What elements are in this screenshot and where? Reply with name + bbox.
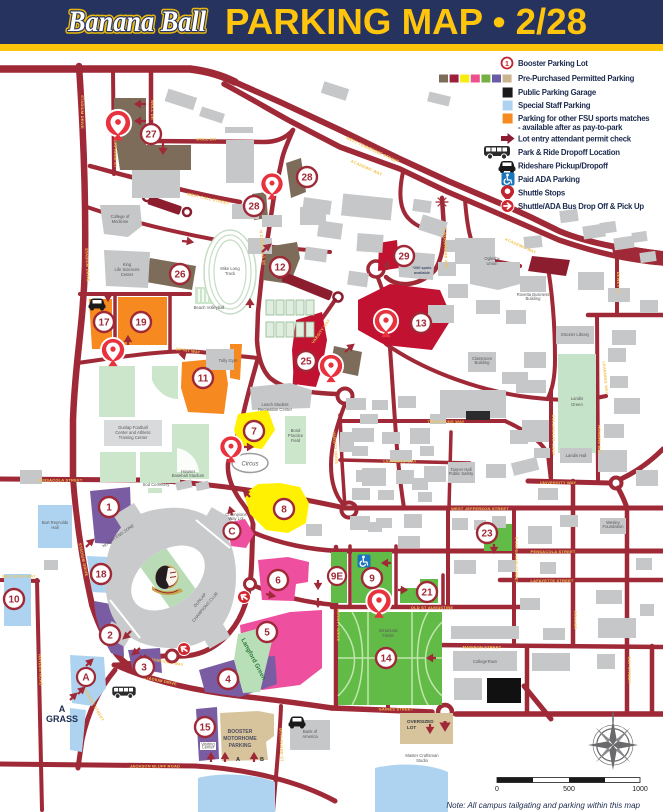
svg-text:9E: 9E [331, 572, 344, 583]
svg-text:JACKSON BLUFF ROAD: JACKSON BLUFF ROAD [130, 764, 180, 769]
svg-text:Landis: Landis [571, 396, 583, 401]
svg-text:1: 1 [505, 61, 509, 68]
svg-text:23: 23 [481, 529, 493, 540]
svg-text:15: 15 [199, 723, 211, 734]
svg-text:Pre-Purchased Permitted Parkin: Pre-Purchased Permitted Parking [518, 74, 635, 83]
svg-text:Park & Ride Dropoff Location: Park & Ride Dropoff Location [518, 148, 620, 157]
svg-text:25: 25 [300, 357, 312, 368]
svg-text:LOT: LOT [407, 725, 416, 730]
svg-text:Field: Field [291, 438, 301, 443]
svg-text:HONORS WAY: HONORS WAY [597, 425, 602, 455]
svg-text:19: 19 [135, 318, 147, 329]
svg-text:Way Lot: Way Lot [228, 516, 244, 521]
svg-text:Baseball Stadium: Baseball Stadium [172, 473, 205, 478]
svg-text:Studio: Studio [416, 758, 429, 763]
svg-text:Circus: Circus [241, 462, 258, 468]
svg-text:MADISON STREET: MADISON STREET [463, 645, 502, 650]
svg-text:Parking for other FSU sports m: Parking for other FSU sports matches [518, 114, 650, 123]
svg-text:A: A [82, 673, 89, 684]
svg-text:LAFAYETTE STREET: LAFAYETTE STREET [530, 578, 573, 583]
svg-text:TRADITIONS WAY: TRADITIONS WAY [427, 419, 464, 424]
svg-text:Recreation Center: Recreation Center [258, 407, 293, 412]
svg-text:Special Staff Parking: Special Staff Parking [518, 101, 591, 110]
svg-text:Hall: Hall [51, 525, 58, 530]
svg-text:OVERSIZED: OVERSIZED [407, 719, 434, 724]
svg-text:PARKING MAP • 2/28: PARKING MAP • 2/28 [225, 1, 587, 42]
svg-text:3: 3 [141, 663, 147, 674]
svg-text:Tully Gym: Tully Gym [219, 358, 238, 363]
svg-text:A: A [236, 757, 240, 763]
svg-text:21: 21 [421, 588, 433, 599]
svg-text:Center: Center [202, 745, 215, 750]
svg-text:29: 29 [398, 252, 410, 263]
svg-text:Public Safety: Public Safety [449, 471, 474, 476]
svg-text:BELLEVUE WAY: BELLEVUE WAY [2, 574, 36, 579]
svg-text:WOLL DR: WOLL DR [150, 100, 155, 120]
svg-text:Green: Green [571, 402, 583, 407]
svg-text:Foundation: Foundation [603, 524, 625, 529]
svg-text:BOOSTER: BOOSTER [228, 729, 253, 735]
svg-text:5: 5 [264, 628, 270, 639]
svg-text:13: 13 [415, 319, 427, 330]
svg-text:17: 17 [98, 318, 110, 329]
svg-text:GAINES STREET: GAINES STREET [379, 707, 414, 712]
svg-text:Paid ADA Parking: Paid ADA Parking [518, 175, 580, 184]
svg-text:OLD ST AUGUSTINE: OLD ST AUGUSTINE [411, 605, 454, 610]
svg-text:S COPELAND STREET: S COPELAND STREET [514, 537, 519, 584]
svg-text:14: 14 [380, 654, 392, 665]
svg-text:B: B [260, 757, 264, 763]
svg-text:2: 2 [107, 631, 113, 642]
svg-text:Landis Hall: Landis Hall [566, 453, 587, 458]
svg-text:Public Parking Garage: Public Parking Garage [518, 88, 597, 97]
svg-text:LEARNING WAY: LEARNING WAY [383, 459, 416, 464]
svg-text:MURPHREE ST: MURPHREE ST [113, 136, 118, 168]
svg-text:COLLEGIATE LOOP: COLLEGIATE LOOP [551, 415, 556, 456]
svg-text:UNIVERSITY WAY: UNIVERSITY WAY [540, 480, 577, 485]
svg-text:500: 500 [563, 786, 575, 793]
svg-text:28: 28 [301, 173, 313, 184]
svg-text:Shuttle Stops: Shuttle Stops [518, 189, 566, 198]
svg-text:7: 7 [251, 427, 257, 438]
svg-text:- available after as pay-to-pa: - available after as pay-to-park [518, 123, 623, 132]
svg-text:28: 28 [248, 202, 260, 213]
svg-text:18: 18 [95, 570, 107, 581]
svg-text:26: 26 [174, 270, 186, 281]
svg-text:Track: Track [225, 271, 236, 276]
svg-text:8: 8 [281, 505, 287, 516]
svg-text:Shuttle/ADA Bus Drop Off & Pic: Shuttle/ADA Bus Drop Off & Pick Up [518, 202, 644, 211]
svg-text:MOTORHOME: MOTORHOME [223, 736, 257, 742]
svg-text:6: 6 [275, 576, 281, 587]
svg-text:A: A [59, 704, 66, 714]
svg-text:COLLIER: COLLIER [573, 611, 578, 630]
svg-text:PENSACOLA STREET: PENSACOLA STREET [530, 549, 575, 554]
svg-text:Building: Building [526, 296, 542, 301]
svg-text:Fields: Fields [382, 633, 393, 638]
svg-text:CollegeTown: CollegeTown [473, 659, 498, 664]
svg-text:*200 spots: *200 spots [413, 266, 432, 270]
svg-text:GRASS: GRASS [46, 714, 78, 724]
svg-text:Lot entry attendant permit che: Lot entry attendant permit check [518, 135, 632, 144]
svg-text:12: 12 [274, 263, 286, 274]
svg-text:STADIUM DRIVE: STADIUM DRIVE [80, 95, 85, 129]
svg-text:Note: All campus tailgating an: Note: All campus tailgating and parking … [446, 801, 640, 810]
svg-text:GAY STREET: GAY STREET [627, 656, 632, 683]
svg-text:DEWEY ST: DEWEY ST [616, 272, 621, 295]
svg-text:0: 0 [495, 786, 499, 793]
svg-text:Center: Center [121, 272, 134, 277]
svg-text:9: 9 [369, 574, 375, 585]
svg-text:Union: Union [487, 261, 499, 266]
svg-text:WEST JEFFERSON STREET: WEST JEFFERSON STREET [451, 506, 509, 511]
svg-text:Training Center: Training Center [119, 435, 148, 440]
svg-text:available: available [414, 271, 430, 275]
svg-text:WOLL DR: WOLL DR [196, 137, 216, 142]
svg-text:27: 27 [145, 130, 157, 141]
svg-text:1: 1 [106, 503, 112, 514]
svg-text:4: 4 [225, 675, 231, 686]
svg-text:C: C [228, 527, 235, 538]
svg-text:Medicine: Medicine [112, 219, 129, 224]
svg-text:PARKING: PARKING [229, 743, 252, 749]
svg-text:Banana Ball: Banana Ball [67, 5, 206, 38]
svg-text:America: America [302, 734, 318, 739]
svg-text:PENSACOLA STREET: PENSACOLA STREET [37, 478, 82, 483]
svg-text:VARSITY DRIVE: VARSITY DRIVE [336, 609, 341, 642]
svg-text:11: 11 [198, 374, 209, 385]
svg-text:10: 10 [8, 595, 20, 606]
svg-text:Booster Parking Lot: Booster Parking Lot [518, 59, 588, 68]
svg-text:Building: Building [475, 360, 491, 365]
svg-text:Rideshare Pickup/Dropoff: Rideshare Pickup/Dropoff [518, 162, 608, 171]
svg-text:Strozier Library: Strozier Library [561, 332, 590, 337]
svg-text:Sod Cemetery: Sod Cemetery [143, 482, 171, 487]
svg-text:1000: 1000 [632, 786, 648, 793]
svg-text:Beach Volleyball: Beach Volleyball [194, 305, 225, 310]
